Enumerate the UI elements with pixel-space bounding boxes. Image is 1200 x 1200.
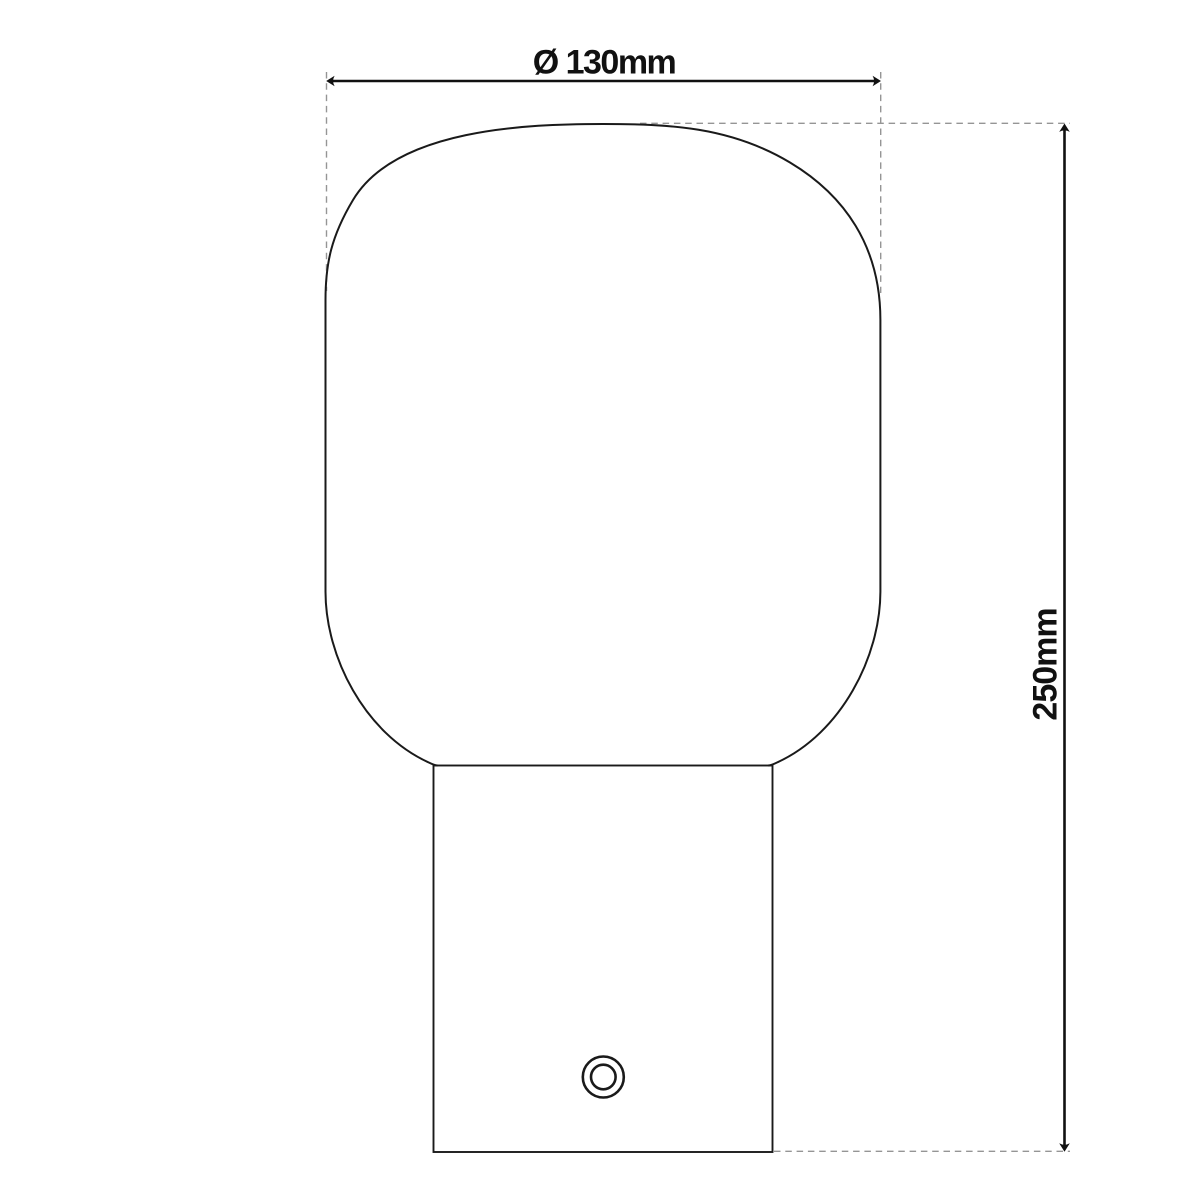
- svg-text:Ø 130mm: Ø 130mm: [533, 44, 676, 82]
- svg-text:250mm: 250mm: [1027, 608, 1065, 720]
